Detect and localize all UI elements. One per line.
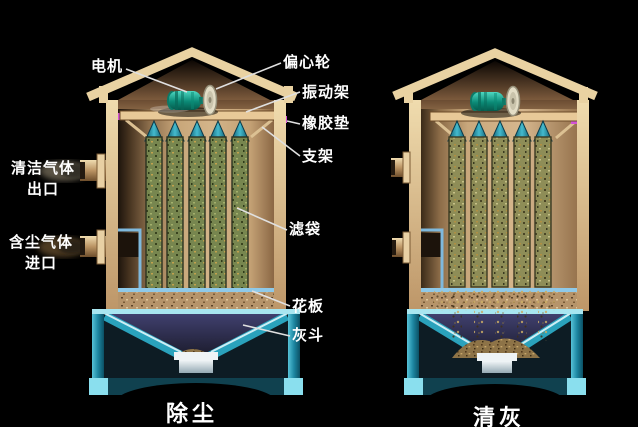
left-tower <box>38 52 303 421</box>
right-inlet-channel <box>421 233 441 257</box>
left-inlet-channel <box>118 233 139 257</box>
label-clean-gas-outlet: 清洁气体 出口 <box>8 158 78 200</box>
right-inlet-stub <box>392 232 410 263</box>
label-clean-gas-outlet-line1: 清洁气体 <box>8 158 78 179</box>
caption-dust-removal-mode: 除尘 <box>166 396 218 427</box>
right-leg-right <box>567 378 586 395</box>
label-rubber-pad: 橡胶垫 <box>302 115 350 132</box>
label-support-frame: 支架 <box>302 148 334 165</box>
left-leg-left <box>89 378 108 395</box>
label-tube-sheet: 花板 <box>292 298 324 315</box>
label-filter-bag: 滤袋 <box>289 221 321 238</box>
right-leg-left <box>404 378 423 395</box>
left-leg-right <box>284 378 303 395</box>
label-dusty-gas-inlet-line1: 含尘气体 <box>6 232 76 253</box>
right-filter-bags <box>448 121 552 287</box>
caption-ash-cleaning-mode: 清灰 <box>473 400 525 427</box>
left-wall-right <box>274 100 286 310</box>
label-vibration-frame: 振动架 <box>302 84 350 101</box>
left-tube-sheet <box>118 288 284 292</box>
label-dusty-gas-inlet-line2: 进口 <box>6 253 76 274</box>
right-wall-left <box>409 100 421 311</box>
label-dusty-gas-inlet: 含尘气体 进口 <box>6 232 76 274</box>
left-filter-bags <box>145 121 249 290</box>
leader-rubber-pad <box>287 121 300 124</box>
label-eccentric-wheel: 偏心轮 <box>283 54 331 71</box>
left-hopper-rim <box>92 309 300 314</box>
left-hopper-spout <box>174 352 218 360</box>
right-hopper-spout <box>477 353 517 361</box>
right-wall-right <box>577 100 589 311</box>
left-wall-left <box>106 100 118 310</box>
right-tower <box>391 53 596 420</box>
baghouse-filter-diagram: 电机 偏心轮 振动架 橡胶垫 支架 清洁气体 出口 含尘气体 进口 滤袋 花板 … <box>0 0 638 427</box>
label-motor: 电机 <box>91 58 123 75</box>
label-clean-gas-outlet-line2: 出口 <box>8 179 78 200</box>
label-ash-hopper: 灰斗 <box>292 327 324 344</box>
right-outlet-stub <box>391 152 410 183</box>
